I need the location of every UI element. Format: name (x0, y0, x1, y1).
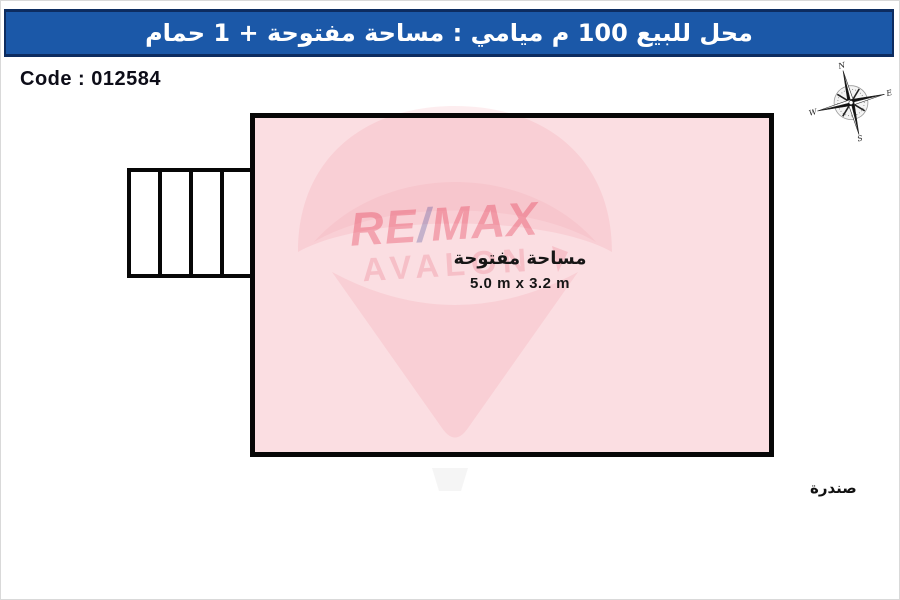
header-bar: محل للبيع 100 م ميامي : مساحة مفتوحة + 1… (4, 9, 894, 57)
compass-north-label: N (836, 60, 846, 71)
property-code: Code : 012584 (20, 68, 161, 91)
listing-title: محل للبيع 100 م ميامي : مساحة مفتوحة + 1… (145, 19, 753, 47)
stair-tread (131, 172, 162, 274)
staircase (127, 168, 255, 278)
room-dimensions: 5.0 m x 3.2 m (395, 275, 645, 292)
balloon-basket (432, 468, 468, 491)
compass-west-label: W (808, 107, 819, 118)
loft-label: صندرة (810, 479, 857, 497)
stair-tread (162, 172, 193, 274)
stair-tread (224, 172, 251, 274)
compass-south-label: S (856, 133, 863, 143)
room-name: مساحة مفتوحة (395, 248, 645, 269)
room-label: مساحة مفتوحة 5.0 m x 3.2 m (395, 248, 645, 292)
stair-tread (193, 172, 224, 274)
compass-east-label: E (884, 88, 893, 98)
compass-rose-icon: N E S W (806, 56, 896, 146)
